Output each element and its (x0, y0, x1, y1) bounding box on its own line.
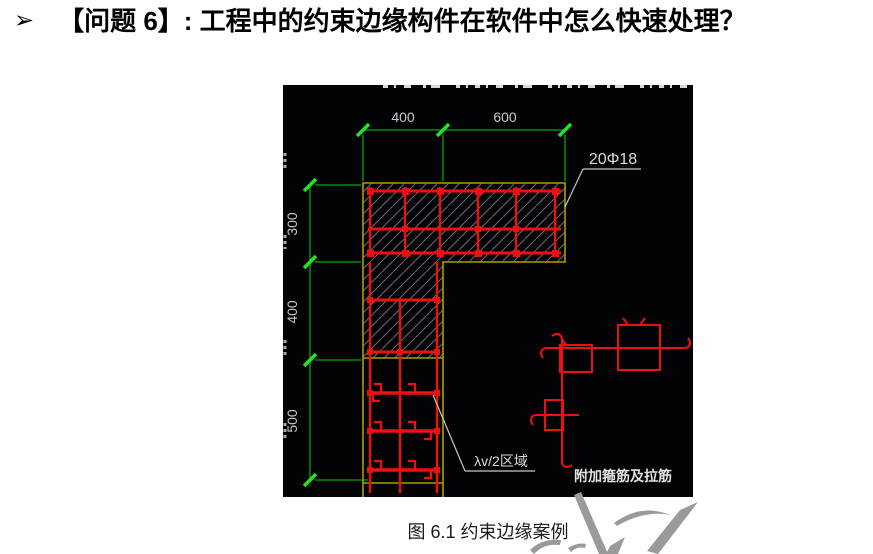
cad-figure-image: 400 600 300 400 500 (283, 85, 693, 497)
rebar-spec-label: 20Φ18 (589, 151, 637, 168)
figure-caption: 图 6.1 约束边缘案例 (283, 518, 693, 544)
question-title: ➢ 【问题 6】: 工程中的约束边缘构件在软件中怎么快速处理？ (14, 4, 864, 38)
zone-label: λv/2区域 (474, 453, 528, 469)
left-dimension (304, 179, 368, 486)
detail-label: 附加箍筋及拉筋 (574, 468, 672, 484)
question-title-text: 【问题 6】: 工程中的约束边缘构件在软件中怎么快速处理？ (58, 4, 746, 38)
dim-left-500: 500 (284, 409, 300, 433)
rebar-spec-leader (565, 169, 641, 207)
dim-left-300: 300 (284, 212, 300, 236)
dim-left-400: 400 (284, 300, 300, 324)
detail-drawing (531, 318, 690, 467)
arrow-bullet-icon: ➢ (14, 4, 34, 38)
dim-top-400: 400 (391, 109, 415, 125)
dim-top-600: 600 (493, 109, 517, 125)
cad-drawing: 400 600 300 400 500 (283, 85, 693, 497)
hatched-zones (363, 183, 565, 358)
top-dimension (357, 124, 571, 181)
